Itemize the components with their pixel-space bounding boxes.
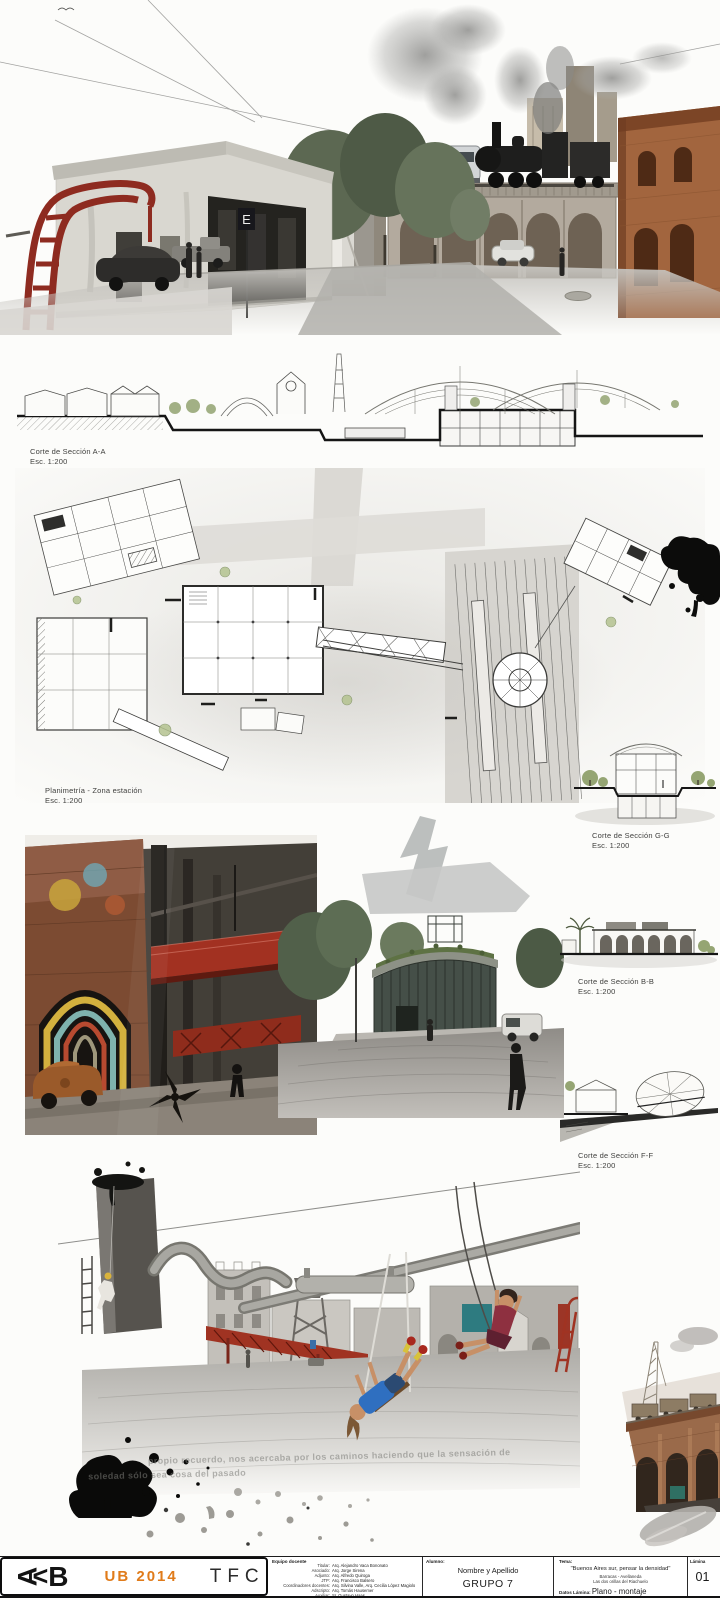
label-title: Corte de Sección F-F bbox=[578, 1151, 653, 1161]
student-cell: Alumno: Nombre y Apellido GRUPO 7 bbox=[423, 1557, 554, 1596]
label-scale: Esc. 1:200 bbox=[45, 796, 142, 806]
top-photomontage: E bbox=[0, 0, 720, 335]
sheet-number-cell: Lámina 01 bbox=[688, 1557, 717, 1596]
label-scale: Esc. 1:200 bbox=[30, 457, 106, 467]
silo-ladder bbox=[82, 1256, 92, 1334]
label-plan: Planimetría - Zona estación Esc. 1:200 bbox=[45, 786, 142, 806]
theme-heading: Tema: bbox=[559, 1559, 682, 1565]
label-scale: Esc. 1:200 bbox=[592, 841, 670, 851]
label-title: Corte de Sección B-B bbox=[578, 977, 654, 987]
plan-left-building bbox=[37, 618, 147, 730]
presentation-board: E bbox=[0, 0, 720, 1600]
render-graffiti-arches bbox=[25, 835, 317, 1135]
ub-year-label: UB 2014 bbox=[105, 1568, 178, 1585]
ink-splat-right bbox=[660, 528, 720, 624]
label-title: Corte de Sección A-A bbox=[30, 447, 106, 457]
logo-cell: A<B UB 2014 TFC bbox=[0, 1557, 268, 1596]
manhole bbox=[565, 292, 591, 301]
label-section-aa: Corte de Sección A-A Esc. 1:200 bbox=[30, 447, 106, 467]
label-section-gg: Corte de Sección G-G Esc. 1:200 bbox=[592, 831, 670, 851]
teal-cube bbox=[462, 1304, 492, 1332]
theme-cell: Tema: "Buenos Aires sur, pensar la densi… bbox=[554, 1557, 688, 1596]
section-bb-drawing bbox=[558, 896, 720, 978]
brush-swoosh bbox=[636, 1496, 720, 1554]
student-group: GRUPO 7 bbox=[423, 1578, 553, 1590]
tfc-label: TFC bbox=[210, 1566, 265, 1588]
sheet-number-label: Lámina bbox=[688, 1557, 717, 1564]
section-aa-drawing bbox=[15, 350, 705, 448]
studio-logo-a: A bbox=[12, 1567, 43, 1587]
teaching-team-cell: Equipo docente Titular:Arq. Alejandro Va… bbox=[268, 1557, 423, 1596]
theme-title: "Buenos Aires sur, pensar la densidad" bbox=[559, 1566, 682, 1574]
render-street-corner bbox=[278, 816, 564, 1118]
sepia-viaduct-photo bbox=[596, 1326, 720, 1512]
section-ff-drawing bbox=[558, 1050, 720, 1150]
student-heading: Alumno: bbox=[426, 1559, 445, 1564]
student-name: Nombre y Apellido bbox=[423, 1566, 553, 1575]
label-section-ff: Corte de Sección F-F Esc. 1:200 bbox=[578, 1151, 653, 1171]
theme-subtitle-2: Las dos orillas del Riachuelo bbox=[559, 1579, 682, 1585]
figure-small bbox=[427, 1019, 433, 1041]
sheet-data-value: Plano - montaje bbox=[592, 1587, 647, 1596]
plan-circular-plaza bbox=[493, 653, 547, 707]
label-title: Planimetría - Zona estación bbox=[45, 786, 142, 796]
plan-station-hall bbox=[183, 586, 323, 694]
label-scale: Esc. 1:200 bbox=[578, 987, 654, 997]
team-row: Auxiliar:Sr. Gustavo Haas bbox=[272, 1594, 418, 1596]
label-scale: Esc. 1:200 bbox=[578, 1161, 653, 1171]
concrete-silo bbox=[92, 1162, 162, 1335]
splatter-strip bbox=[120, 1500, 420, 1556]
section-gg-drawing bbox=[570, 726, 720, 830]
studio-logo-b: B bbox=[48, 1561, 68, 1593]
label-section-bb: Corte de Sección B-B Esc. 1:200 bbox=[578, 977, 654, 997]
title-block: A<B UB 2014 TFC Equipo docente Titular:A… bbox=[0, 1556, 720, 1598]
label-title: Corte de Sección G-G bbox=[592, 831, 670, 841]
sheet-data-row: Datos Lámina: Plano - montaje bbox=[559, 1587, 682, 1596]
sheet-number-value: 01 bbox=[688, 1570, 717, 1584]
svg-text:E: E bbox=[242, 212, 251, 227]
